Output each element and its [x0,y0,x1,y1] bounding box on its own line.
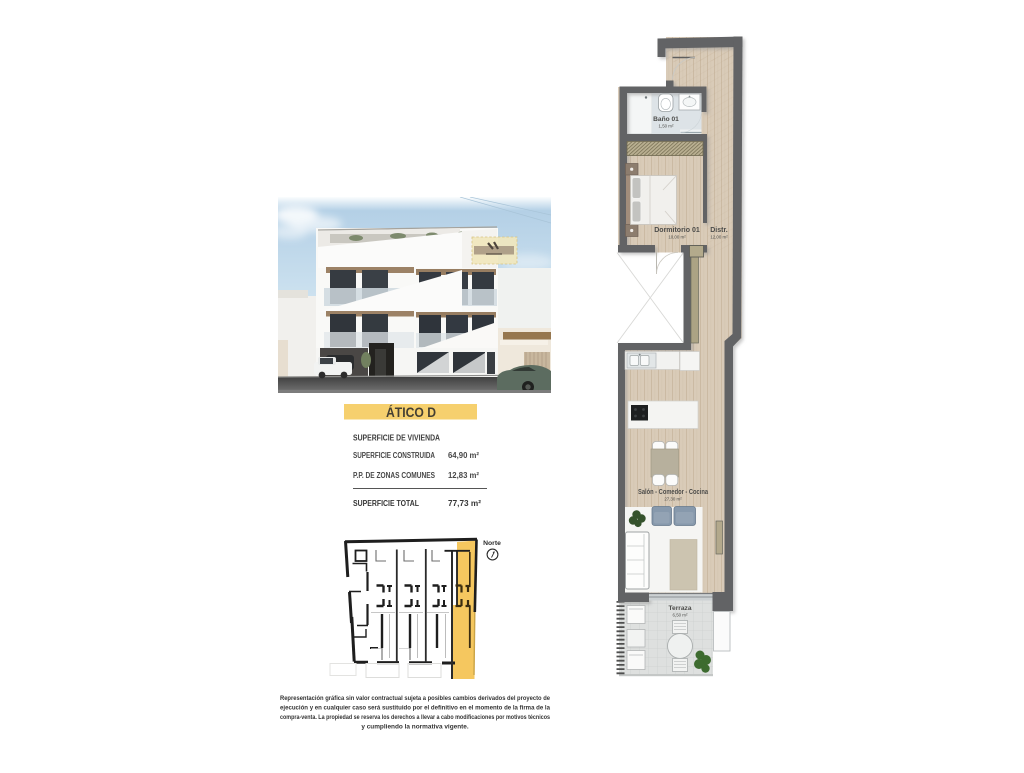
svg-text:Terraza: Terraza [669,605,692,612]
svg-text:Representación gráfica sin val: Representación gráfica sin valor contrac… [280,695,550,702]
svg-text:64,90 m²: 64,90 m² [448,451,479,460]
svg-text:6,50 m²: 6,50 m² [673,613,688,618]
svg-text:1,50 m²: 1,50 m² [659,124,674,129]
svg-text:SUPERFICIE TOTAL: SUPERFICIE TOTAL [353,498,419,508]
svg-text:27,30 m²: 27,30 m² [664,497,682,502]
svg-text:ÁTICO D: ÁTICO D [386,404,436,421]
svg-text:Distr.: Distr. [710,227,728,234]
svg-text:Baño 01: Baño 01 [653,116,679,123]
svg-text:Dormitorio 01: Dormitorio 01 [654,227,700,234]
svg-text:Salón - Comedor - Cocina: Salón - Comedor - Cocina [638,489,708,496]
svg-text:12,00 m²: 12,00 m² [710,235,728,240]
svg-text:y cumpliendo la normativa vige: y cumpliendo la normativa vigente. [361,724,469,731]
svg-text:Norte: Norte [483,540,501,547]
svg-text:P.P. DE ZONAS COMUNES: P.P. DE ZONAS COMUNES [353,471,435,480]
svg-text:compra-venta. La propiedad se: compra-venta. La propiedad se reserva lo… [280,714,550,721]
svg-text:SUPERFICIE CONSTRUIDA: SUPERFICIE CONSTRUIDA [353,451,435,460]
svg-text:77,73 m²: 77,73 m² [448,498,481,508]
svg-text:12,83 m²: 12,83 m² [448,471,479,480]
svg-text:10,00 m²: 10,00 m² [668,235,686,240]
svg-text:SUPERFICIE DE VIVIENDA: SUPERFICIE DE VIVIENDA [353,433,440,443]
svg-text:ejecución y en cualquier caso: ejecución y en cualquier caso será susti… [280,705,550,712]
